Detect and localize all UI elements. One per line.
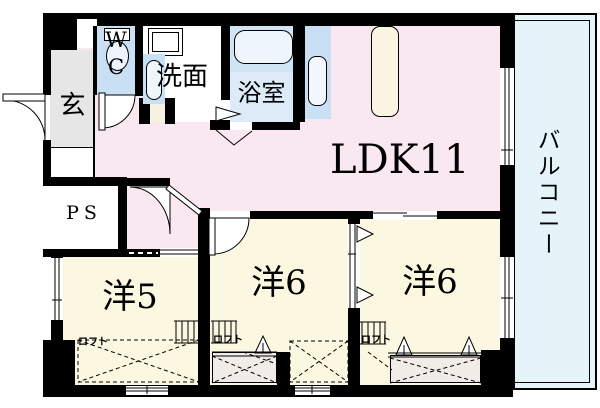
wall-closet-stub-right	[481, 350, 500, 385]
washing-machine-inner	[152, 32, 179, 52]
wall-washroom-bath	[221, 13, 230, 100]
closet-right	[390, 355, 481, 383]
room6-center-doorway	[210, 211, 250, 219]
room6-partition-opening	[348, 224, 360, 308]
wall-right-a	[500, 13, 514, 68]
western-room6-center-label: 洋6	[210, 266, 348, 302]
wc-label-c: C	[108, 55, 124, 79]
window-bottom-room6	[295, 386, 330, 395]
window-bottom-room5	[126, 386, 168, 395]
wall-right-c	[500, 338, 514, 390]
wall-bottom	[43, 385, 513, 397]
bathtub	[234, 30, 293, 64]
western-room5-label: 洋5	[62, 280, 198, 316]
wall-right-b	[500, 165, 514, 257]
genkan-corridor	[50, 148, 95, 177]
ldk-label: LDK11	[330, 139, 460, 181]
wc-label: W C	[97, 27, 135, 81]
wall-kitchen	[293, 13, 305, 122]
sliding-door-room5	[160, 248, 198, 257]
sliding-door-ldk-room6	[373, 211, 437, 220]
entrance-door-icon	[3, 94, 45, 140]
wall-ldk-rooms-b	[437, 211, 500, 219]
washroom-label: 洗面	[143, 64, 221, 91]
kitchen-counter	[371, 26, 399, 117]
loft-label-room5: ロフト	[78, 338, 118, 349]
wall-block-topleft	[43, 26, 77, 50]
wall-room5-room6	[198, 208, 210, 387]
wall-ps-right	[118, 177, 127, 252]
closet-center	[212, 352, 277, 383]
wall-left-mid	[43, 140, 51, 178]
pipe-space-label: PS	[50, 204, 118, 224]
wall-top	[43, 13, 512, 26]
wall-wc-washroom	[135, 13, 143, 96]
wall-hall-stub	[127, 178, 170, 186]
loft-label-room6-center: ロフト	[213, 336, 253, 347]
bath-door-gap	[230, 122, 252, 130]
wall-washroom-stub-b	[165, 98, 175, 124]
bath-entry-gap	[221, 100, 230, 122]
window-ldk-balcony	[501, 68, 514, 165]
window-room6-balcony	[501, 257, 514, 338]
floor-plan: 玄 W C 洗面 浴室 LDK11 PS 洋5 洋6 洋6 ロフト ロフト ロフ…	[0, 0, 600, 408]
western-room6-right-label: 洋6	[360, 265, 500, 301]
bathroom-label: 浴室	[230, 81, 293, 106]
wall-room6-partition-bottom	[348, 308, 360, 390]
wc-label-w: W	[105, 28, 127, 52]
balcony-label: バルコニー	[534, 108, 558, 278]
kitchen-sink	[308, 56, 327, 106]
wall-closet-stub-center	[277, 352, 290, 385]
wall-ps-top	[43, 177, 127, 186]
wall-bath-bottom-stub	[210, 120, 230, 130]
genkan-label: 玄	[50, 93, 95, 120]
loft-label-room6-right: ロフト	[361, 336, 401, 347]
washing-machine	[148, 28, 183, 56]
wall-bath-bottom	[252, 122, 300, 130]
